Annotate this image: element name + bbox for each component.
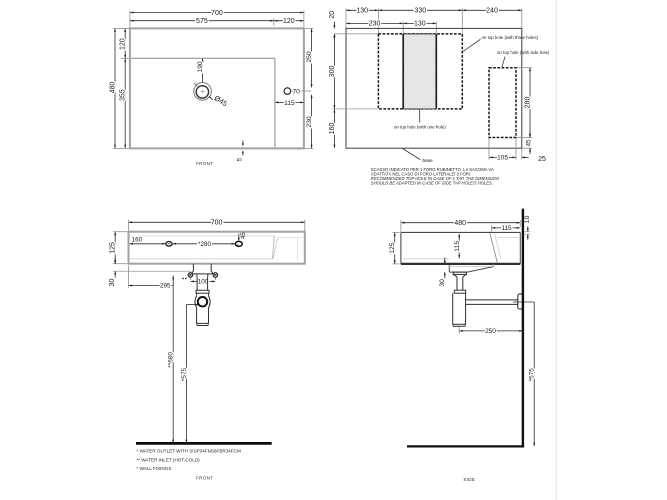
svg-text:160: 160 bbox=[131, 237, 142, 244]
svg-text:base: base bbox=[423, 158, 434, 163]
svg-text:120: 120 bbox=[120, 38, 127, 50]
svg-text:330: 330 bbox=[414, 8, 426, 15]
svg-text:280: 280 bbox=[525, 97, 532, 109]
svg-text:FRONT: FRONT bbox=[196, 161, 213, 166]
svg-text:SIDE: SIDE bbox=[463, 477, 475, 482]
svg-text:700: 700 bbox=[211, 220, 223, 227]
svg-text:160: 160 bbox=[329, 122, 336, 134]
svg-text:250: 250 bbox=[306, 51, 313, 63]
svg-text:20: 20 bbox=[329, 11, 336, 19]
svg-text:FRONT: FRONT bbox=[196, 476, 213, 481]
svg-text:*280: *280 bbox=[198, 241, 211, 248]
svg-text:355: 355 bbox=[120, 89, 127, 101]
svg-text:115: 115 bbox=[454, 241, 461, 252]
svg-text:115: 115 bbox=[501, 225, 512, 232]
svg-text:575: 575 bbox=[196, 18, 208, 25]
svg-text:105: 105 bbox=[497, 155, 508, 162]
svg-text:700: 700 bbox=[211, 10, 223, 17]
svg-text:130: 130 bbox=[356, 8, 368, 15]
svg-text:25: 25 bbox=[538, 156, 546, 163]
svg-text:*575: *575 bbox=[529, 368, 536, 382]
svg-text:125: 125 bbox=[389, 242, 396, 254]
svg-text:480: 480 bbox=[110, 81, 117, 93]
svg-text:45: 45 bbox=[525, 139, 532, 147]
svg-text:295: 295 bbox=[160, 282, 171, 289]
svg-text:10: 10 bbox=[524, 215, 531, 223]
svg-text:125: 125 bbox=[110, 242, 117, 254]
svg-text:230: 230 bbox=[306, 116, 313, 128]
svg-text:100: 100 bbox=[198, 278, 209, 285]
svg-text:300: 300 bbox=[329, 65, 336, 77]
svg-text:** WATER INLET (HOT-COLD): ** WATER INLET (HOT-COLD) bbox=[137, 457, 201, 462]
svg-text:115: 115 bbox=[284, 100, 295, 107]
svg-text:5: 5 bbox=[236, 157, 243, 161]
svg-text:SHOULD BE ADAPTED IN CASE OF S: SHOULD BE ADAPTED IN CASE OF SIDE TAP HO… bbox=[371, 181, 493, 186]
svg-text:190: 190 bbox=[197, 61, 204, 73]
svg-text:230: 230 bbox=[369, 21, 381, 28]
svg-text:on top hole (with three holes): on top hole (with three holes) bbox=[482, 35, 539, 40]
svg-text:480: 480 bbox=[454, 220, 466, 227]
svg-text:**680: **680 bbox=[168, 352, 175, 368]
svg-text:* WATER OUTLET WITH SISP34FNS: * WATER OUTLET WITH SISP34FNS6FBR34FCM bbox=[137, 448, 241, 453]
svg-text:250: 250 bbox=[485, 328, 496, 335]
svg-text:on top hole (with side hole): on top hole (with side hole) bbox=[497, 50, 550, 55]
svg-text:240: 240 bbox=[486, 8, 498, 15]
svg-text:30: 30 bbox=[439, 279, 446, 287]
svg-text:70: 70 bbox=[293, 88, 301, 95]
svg-text:on top hole (with one hole): on top hole (with one hole) bbox=[394, 125, 446, 130]
svg-text:130: 130 bbox=[414, 21, 426, 28]
svg-text:120: 120 bbox=[283, 18, 295, 25]
svg-text:45: 45 bbox=[241, 232, 247, 239]
svg-text:* WALL FIXINGS: * WALL FIXINGS bbox=[137, 466, 172, 471]
svg-text:*575: *575 bbox=[181, 367, 188, 381]
svg-text:30: 30 bbox=[109, 279, 116, 287]
